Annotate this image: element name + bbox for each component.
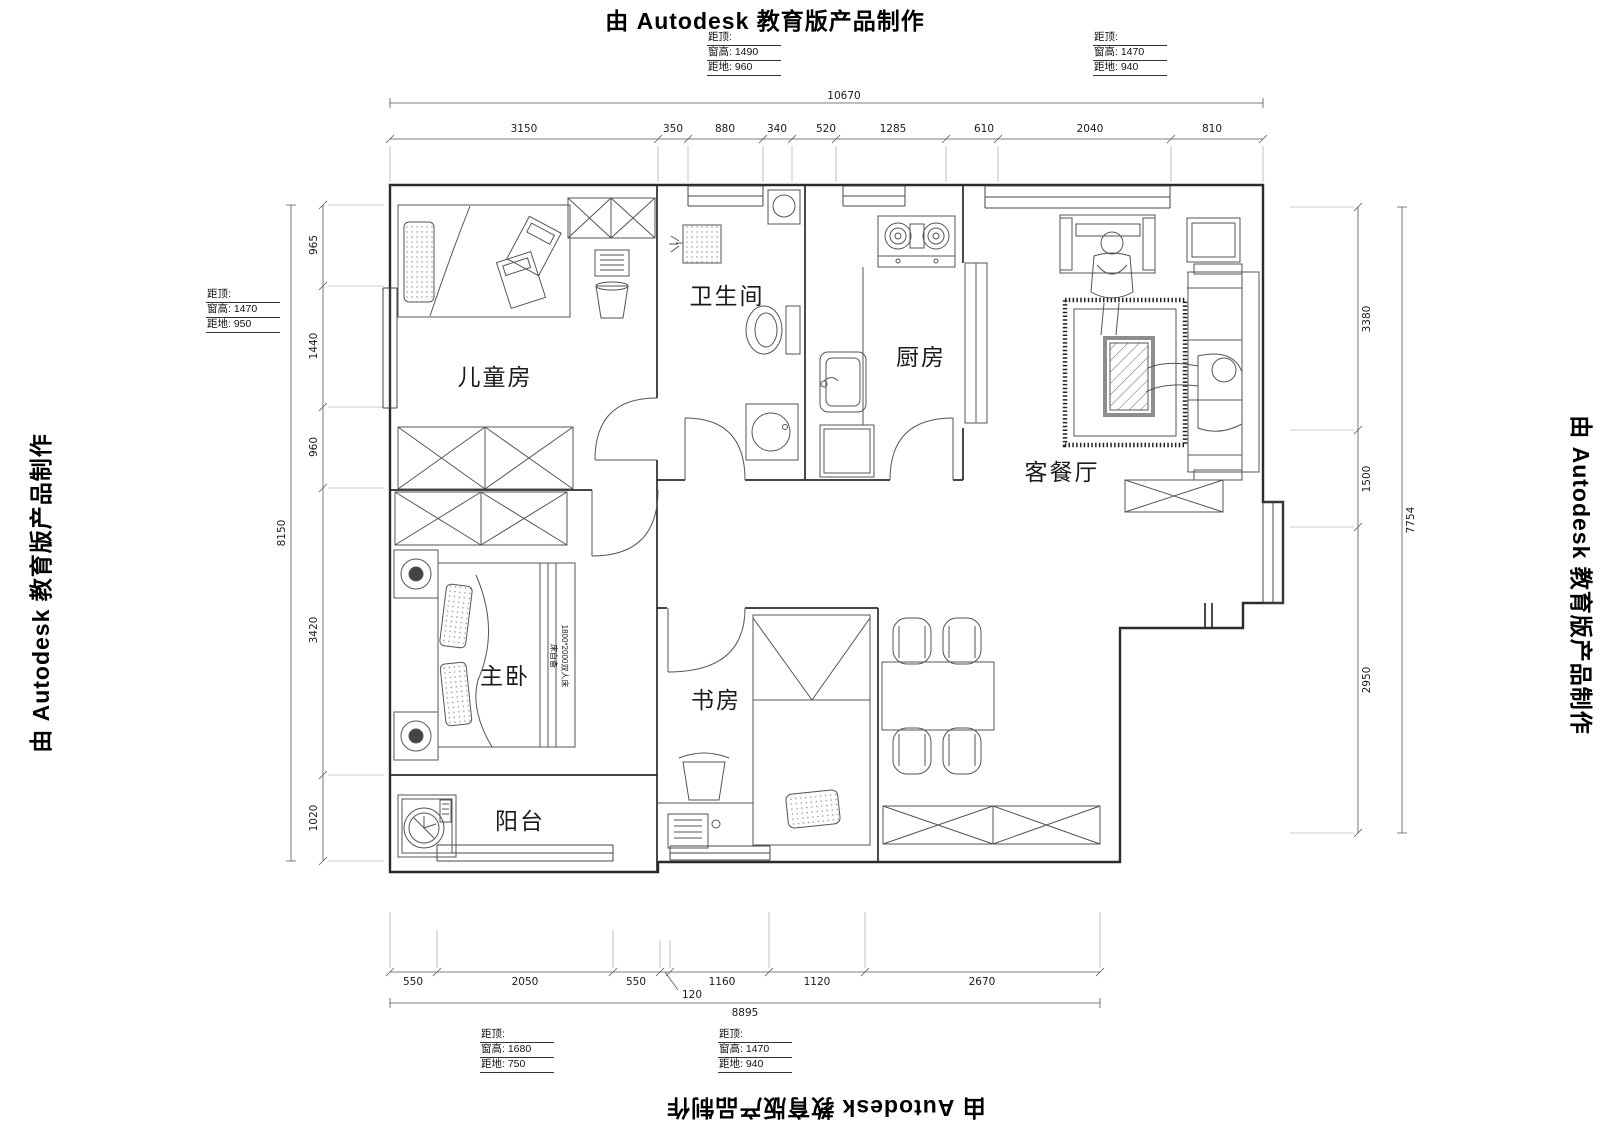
dim-top-seg: 340 xyxy=(767,123,787,135)
dim-left-overall: 8150 xyxy=(276,520,288,547)
dim-top-seg: 610 xyxy=(974,123,994,135)
fridge-niche xyxy=(965,263,987,423)
kitchen-base-cabinet xyxy=(820,425,874,477)
door-children xyxy=(595,398,657,460)
study-furniture xyxy=(658,615,870,848)
dim-right-overall: 7754 xyxy=(1405,506,1417,533)
master-wardrobe-row xyxy=(395,492,567,545)
dim-top-seg: 810 xyxy=(1202,123,1222,135)
dim-bottom-seg: 1160 xyxy=(709,976,736,988)
bed-note-line1: 床自备 xyxy=(549,644,559,668)
sideboard xyxy=(883,806,1100,844)
stove xyxy=(878,216,955,267)
kitchen-sink xyxy=(820,352,866,412)
washing-machine xyxy=(398,795,456,857)
window-balcony-bottom xyxy=(437,845,613,861)
children-tv-unit xyxy=(595,250,629,276)
vanity-basin xyxy=(746,404,798,460)
room-label-children: 儿童房 xyxy=(458,364,533,390)
dim-bottom-overall: 8895 xyxy=(732,1007,759,1019)
dim-left-seg: 960 xyxy=(308,437,320,457)
dim-left-seg: 1020 xyxy=(308,805,320,832)
room-label-balcony: 阳台 xyxy=(495,808,545,834)
dim-top-seg: 350 xyxy=(663,123,683,135)
dim-left-seg: 3420 xyxy=(308,617,320,644)
dim-left-seg: 965 xyxy=(308,235,320,255)
dim-bottom-seg: 2670 xyxy=(969,976,996,988)
study-desk xyxy=(658,803,753,848)
window-kitchen-top xyxy=(843,186,905,206)
person-standing xyxy=(1091,232,1133,335)
study-bed xyxy=(753,615,870,845)
dim-bottom-seg: 550 xyxy=(403,976,423,988)
dim-bottom-seg: 2050 xyxy=(512,976,539,988)
floor-plan-page: 由 Autodesk 教育版产品制作 由 Autodesk 教育版产品制作 由 … xyxy=(0,0,1600,1131)
children-wardrobe-row xyxy=(398,427,573,489)
person-sitting xyxy=(1146,354,1242,431)
balcony-furniture xyxy=(398,795,456,857)
side-table-frame xyxy=(1187,218,1240,262)
children-bed xyxy=(398,205,570,317)
room-label-master: 主卧 xyxy=(480,663,530,689)
door-bath xyxy=(685,418,745,480)
nightstand-top xyxy=(394,550,438,598)
windows xyxy=(383,186,1283,861)
dimension-top: 10670 3150 350 880 340 520 1285 610 2040… xyxy=(386,90,1267,182)
shoe-cabinet xyxy=(1125,480,1223,512)
toilet xyxy=(746,306,800,354)
dimension-left: 8150 965 1440 960 3420 1020 xyxy=(276,201,384,865)
dim-bottom-seg: 120 xyxy=(682,989,702,1001)
room-label-study: 书房 xyxy=(691,687,741,713)
study-chair xyxy=(679,753,729,800)
dim-left-seg: 1440 xyxy=(308,333,320,360)
dim-top-overall: 10670 xyxy=(827,90,860,102)
tv-cabinet xyxy=(1060,215,1155,273)
dim-right-seg: 1500 xyxy=(1361,466,1373,493)
dimension-right: 3380 1500 2950 7754 xyxy=(1290,203,1417,837)
room-label-bath: 卫生间 xyxy=(690,283,765,309)
door-study xyxy=(668,608,745,672)
dim-right-seg: 2950 xyxy=(1361,667,1373,694)
dim-bottom-seg: 1120 xyxy=(804,976,831,988)
walls xyxy=(390,185,1283,872)
sofa xyxy=(1188,264,1259,480)
room-label-living: 客餐厅 xyxy=(1025,459,1100,485)
room-label-kitchen: 厨房 xyxy=(896,344,946,370)
room-labels: 儿童房 卫生间 厨房 客餐厅 主卧 书房 阳台 xyxy=(458,283,1100,834)
children-bin xyxy=(596,282,628,318)
shower-pan xyxy=(669,225,721,263)
nightstand-bottom xyxy=(394,712,438,760)
dim-right-seg: 3380 xyxy=(1361,306,1373,333)
bathroom-fixtures xyxy=(669,190,800,460)
window-children-left xyxy=(383,288,397,408)
window-living-top xyxy=(985,186,1170,208)
bath-sink xyxy=(768,190,800,224)
door-kitchen xyxy=(890,418,953,480)
dim-top-seg: 880 xyxy=(715,123,735,135)
dim-top-seg: 3150 xyxy=(511,123,538,135)
door-master xyxy=(592,490,658,556)
window-bath-top xyxy=(688,186,763,206)
dim-top-seg: 1285 xyxy=(880,123,907,135)
coffee-table xyxy=(1105,338,1153,415)
children-closet xyxy=(568,198,655,238)
dining-table-set xyxy=(882,618,994,774)
dimension-bottom: 550 2050 550 120 1160 1120 2670 8895 xyxy=(386,912,1104,1019)
window-living-bay-right xyxy=(1263,502,1283,603)
bed-note-line2: 1800*2000双人床 xyxy=(560,625,570,688)
children-room-furniture xyxy=(398,198,655,489)
dim-top-seg: 520 xyxy=(816,123,836,135)
floor-plan-canvas: 10670 3150 350 880 340 520 1285 610 2040… xyxy=(0,0,1600,1131)
living-room-furniture xyxy=(882,215,1259,844)
children-desk-chairs xyxy=(496,216,561,308)
dim-bottom-seg: 550 xyxy=(626,976,646,988)
master-bedroom-furniture: 床自备 1800*2000双人床 xyxy=(394,492,575,760)
dim-top-seg: 2040 xyxy=(1077,123,1104,135)
